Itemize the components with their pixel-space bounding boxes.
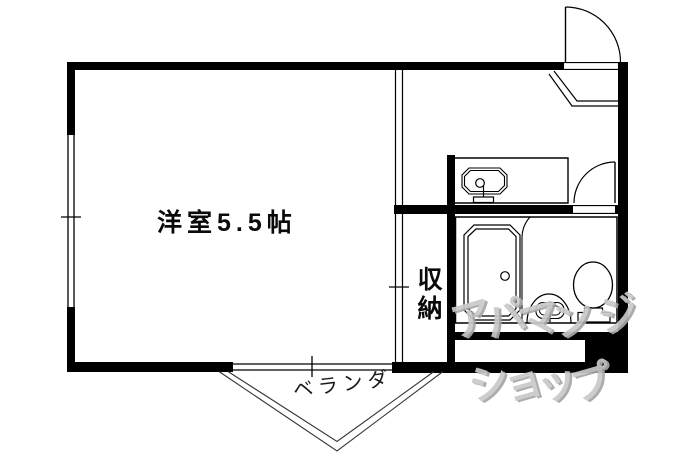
washbasin-sink-icon	[462, 168, 507, 194]
watermark-fragment: ジ	[597, 281, 631, 341]
entrance-step-icon	[549, 71, 618, 106]
watermark-line1: アパマン	[450, 286, 586, 346]
partition-wall	[389, 70, 409, 362]
bathroom-door-icon	[573, 162, 615, 214]
room-label: 洋室5.5帖	[157, 203, 297, 239]
wall-bottom-left	[67, 362, 233, 372]
wall-left-upper	[67, 62, 75, 135]
entrance-door-icon	[563, 7, 621, 70]
wall-bottom-mid	[392, 362, 455, 373]
wall-interior-horizontal-right	[615, 205, 628, 214]
floor-plan-image: 洋室5.5帖 収納 ベランダ アパマン ショップ ジ	[0, 0, 690, 460]
left-window-icon	[61, 135, 81, 307]
wall-top	[67, 62, 563, 70]
watermark-line2: ショップ	[468, 350, 604, 410]
closet-label: 収納	[410, 266, 446, 324]
wall-interior-horizontal	[394, 205, 573, 214]
